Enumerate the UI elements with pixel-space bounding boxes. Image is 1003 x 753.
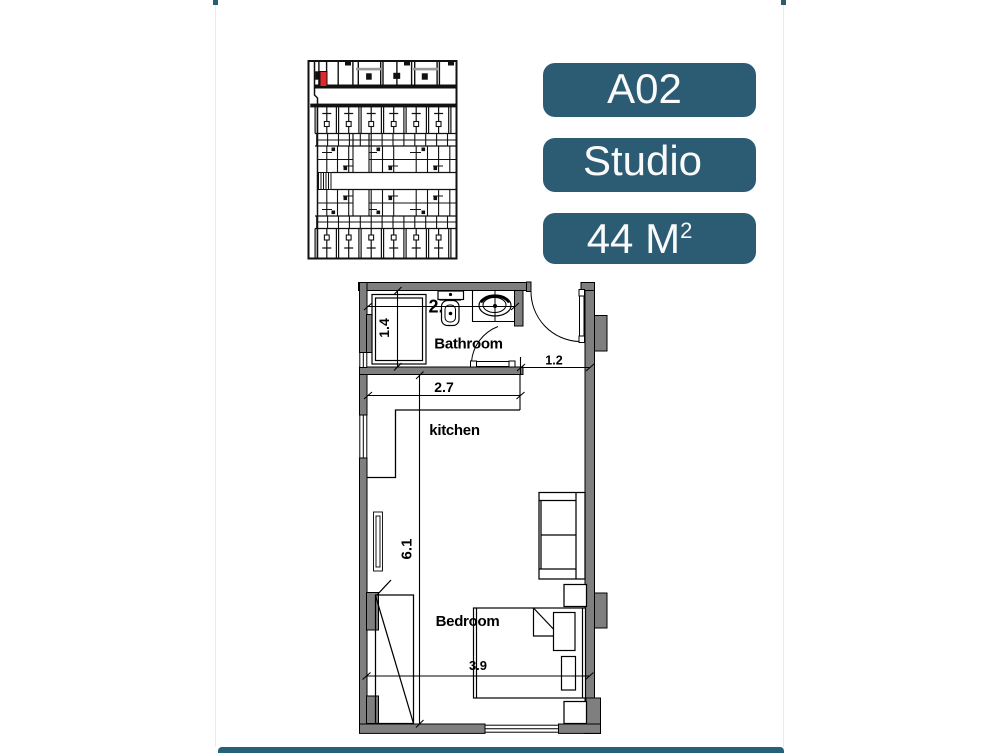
svg-text:Bedroom: Bedroom (436, 613, 500, 630)
svg-text:Bathroom: Bathroom (434, 336, 502, 353)
svg-text:1.4: 1.4 (376, 318, 392, 338)
svg-text:3.9: 3.9 (469, 658, 487, 673)
svg-text:2.7: 2.7 (434, 379, 454, 395)
svg-text:1.2: 1.2 (545, 354, 562, 368)
svg-text:kitchen: kitchen (429, 422, 480, 439)
svg-text:6.1: 6.1 (399, 539, 416, 560)
